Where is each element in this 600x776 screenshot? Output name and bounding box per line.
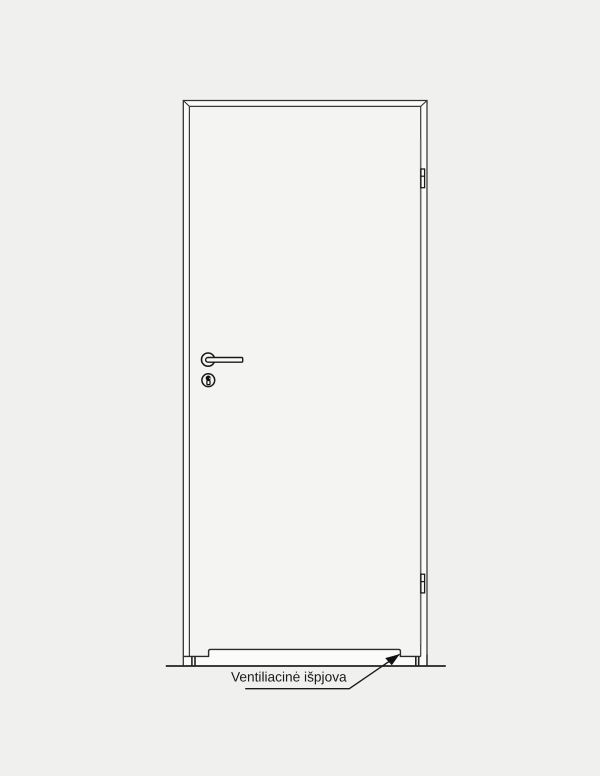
svg-text:Ventiliacinė išpjova: Ventiliacinė išpjova [231,670,347,685]
